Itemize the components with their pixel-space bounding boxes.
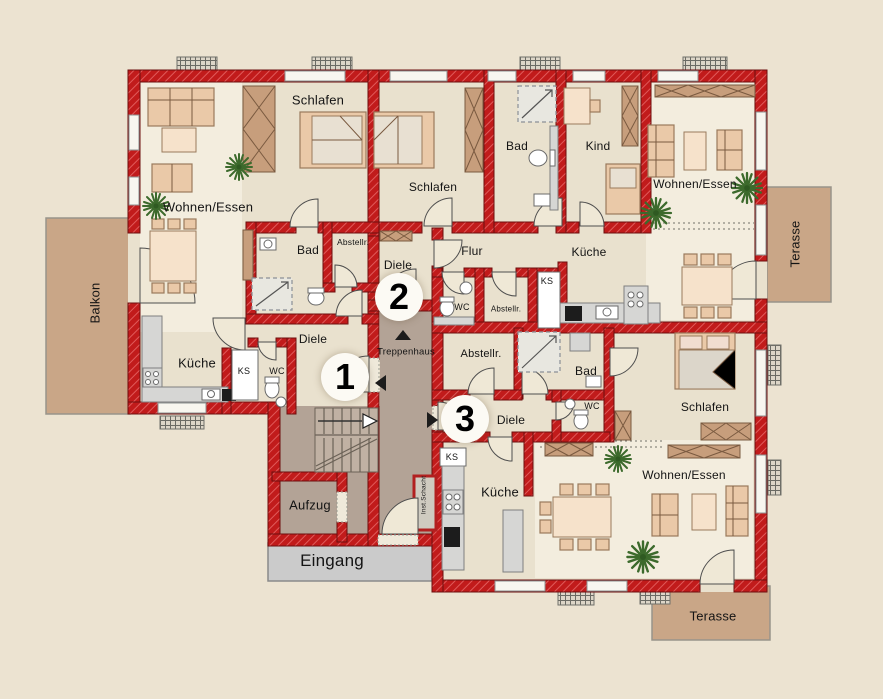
label-inst-schacht: Inst.Schacht xyxy=(421,476,428,514)
room-label-kueche-3: Küche xyxy=(481,485,519,500)
room-label-bad-1: Bad xyxy=(297,243,319,257)
room-label-ks-1: KS xyxy=(238,366,250,376)
floor-plan: Wohnen/Essen Schlafen Bad Abstellr. Diel… xyxy=(0,0,883,699)
room-label-schlafen-3: Schlafen xyxy=(681,400,729,414)
room-label-kueche-2: Küche xyxy=(571,245,606,259)
apartment-2-marker: 2 xyxy=(375,273,423,321)
label-terasse-right: Terasse xyxy=(788,221,803,268)
label-balkon: Balkon xyxy=(88,283,103,324)
staircase xyxy=(315,408,378,472)
room-label-abstellraum-2: Abstellr. xyxy=(491,305,521,314)
room-label-bad-2: Bad xyxy=(506,139,528,153)
room-label-wohnen-essen-2: Wohnen/Essen xyxy=(653,177,737,191)
room-label-wc-2: WC xyxy=(454,302,469,312)
room-label-ks-2: KS xyxy=(541,276,553,286)
room-label-abstellraum-1: Abstellr. xyxy=(337,237,369,247)
apartment-1-marker: 1 xyxy=(321,353,369,401)
apartment-3-marker: 3 xyxy=(441,395,489,443)
room-label-schlafen-1: Schlafen xyxy=(292,93,344,108)
label-eingang: Eingang xyxy=(300,551,364,571)
room-label-ks-3: KS xyxy=(446,452,458,462)
label-treppenhaus: Treppenhaus xyxy=(377,347,435,358)
room-label-diele-1: Diele xyxy=(299,332,327,346)
room-label-wc-1: WC xyxy=(269,366,284,376)
label-terasse-bottom: Terasse xyxy=(690,609,737,624)
room-label-diele-2: Diele xyxy=(384,258,412,272)
room-label-diele-3: Diele xyxy=(497,413,525,427)
room-label-kueche-1: Küche xyxy=(178,356,216,371)
room-label-wohnen-essen-3: Wohnen/Essen xyxy=(642,468,726,482)
room-label-bad-3: Bad xyxy=(575,364,597,378)
floor-plan-drawing xyxy=(0,0,883,699)
room-label-schlafen-2: Schlafen xyxy=(409,180,457,194)
room-label-wc-3: WC xyxy=(584,401,599,411)
room-label-flur-2: Flur xyxy=(461,244,482,258)
room-label-kind-2: Kind xyxy=(586,139,611,153)
room-label-wohnen-essen-1: Wohnen/Essen xyxy=(163,200,253,215)
label-aufzug: Aufzug xyxy=(289,498,331,513)
room-label-abstellraum-3: Abstellr. xyxy=(461,348,502,360)
